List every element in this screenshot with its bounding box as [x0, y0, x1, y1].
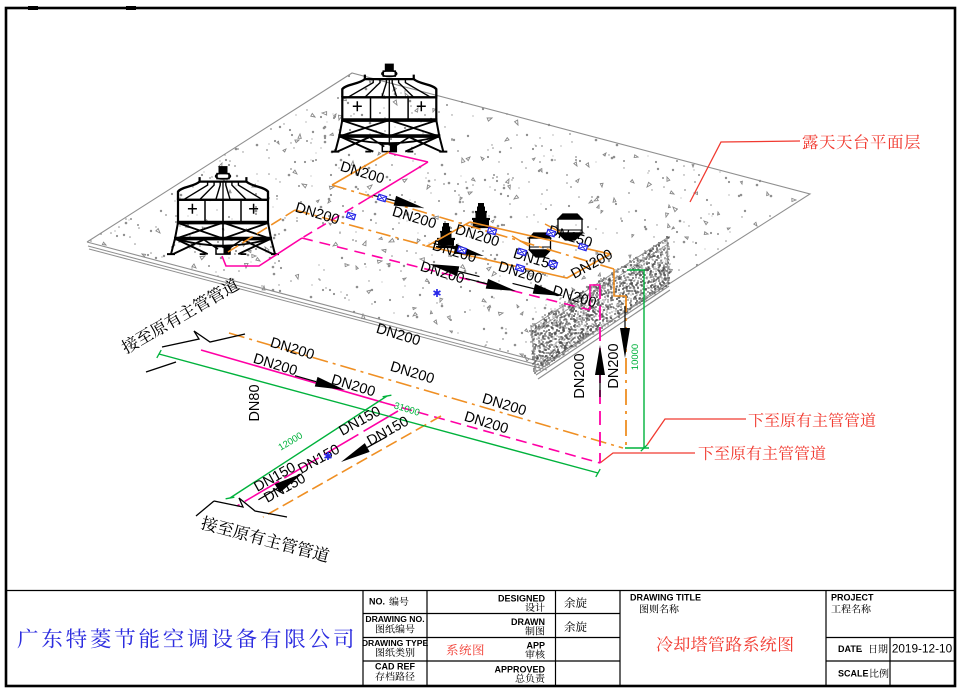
svg-text:SCALE: SCALE — [838, 669, 869, 679]
svg-text:✱: ✱ — [323, 451, 332, 463]
svg-text:DRAWN: DRAWN — [511, 617, 545, 627]
svg-text:NO.: NO. — [369, 597, 385, 607]
svg-text:DESIGNED: DESIGNED — [498, 594, 546, 604]
svg-text:2019-12-10: 2019-12-10 — [892, 642, 953, 656]
svg-text:10000: 10000 — [630, 344, 641, 370]
svg-text:.: . — [860, 644, 863, 654]
svg-text:DATE: DATE — [838, 644, 862, 654]
svg-text:PROJECT: PROJECT — [831, 593, 874, 603]
svg-text:DN200: DN200 — [606, 343, 622, 388]
svg-text:DRAWING TITLE: DRAWING TITLE — [630, 593, 701, 603]
svg-text:CAD REF: CAD REF — [375, 662, 416, 672]
svg-text:DRAWING TYPE: DRAWING TYPE — [362, 638, 429, 648]
svg-text:DRAWING NO.: DRAWING NO. — [365, 614, 424, 624]
svg-text:✱: ✱ — [432, 288, 441, 300]
svg-text:APPROVED: APPROVED — [494, 665, 545, 675]
svg-text:APP: APP — [526, 641, 545, 651]
svg-text:DN200: DN200 — [572, 353, 588, 398]
svg-text:DN80: DN80 — [247, 384, 263, 421]
